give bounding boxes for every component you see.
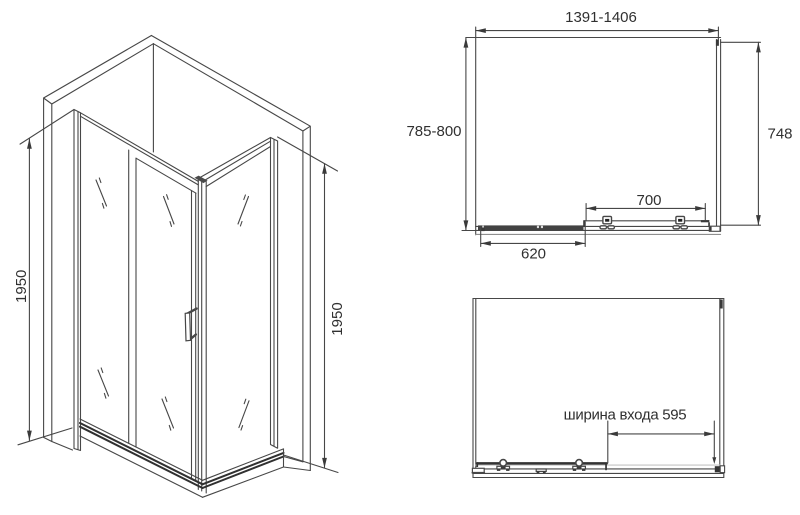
svg-text:620: 620 — [521, 245, 546, 262]
svg-text:ширина входа 595: ширина входа 595 — [564, 407, 687, 424]
svg-text:1950: 1950 — [329, 302, 346, 335]
svg-text:1391-1406: 1391-1406 — [565, 9, 637, 26]
svg-text:785-800: 785-800 — [406, 123, 461, 140]
svg-text:700: 700 — [636, 192, 661, 209]
svg-text:748: 748 — [768, 126, 793, 143]
svg-text:1950: 1950 — [13, 270, 30, 303]
